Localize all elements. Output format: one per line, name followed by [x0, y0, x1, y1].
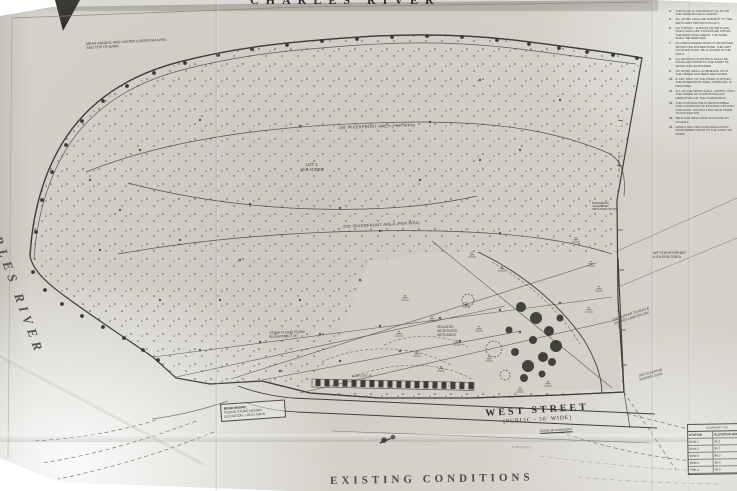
lot-label: LOT 1 ±8.4 ACRES: [300, 162, 323, 172]
top-sheet-title: CHARLES RIVER: [250, 0, 441, 7]
abutter-lines: [615, 198, 737, 287]
table-row: TBM-A85.9: [689, 466, 737, 474]
note-item: 8.ALL EROSION CONTROLS SHALL BE INSTALLE…: [669, 58, 735, 68]
note-item: 4.THIS PLAN IS THE RESULT OF AN ON THE G…: [669, 10, 735, 17]
parcel-outline: [30, 35, 642, 398]
abutter-owner-label: N/F CHRISTOPHER & EILEEN O'DEA: [653, 251, 686, 260]
scanned-survey-plan: CHARLES RIVER CHARLES RIVER 4.THIS PLAN …: [0, 0, 737, 491]
note-item: 14.HAVE A SOIL WETLAND EVALUATION PERFOR…: [669, 126, 735, 136]
note-item: 5.ALL WORK SHALL BE SUBJECT TO THE WETLA…: [669, 18, 735, 25]
bvw-label: BORDERING VEGETATED WETLANDS (BVW): [592, 202, 617, 212]
summary-table: SUMMARY OF STATION ELEVATION BUFFER BVW-…: [687, 423, 737, 475]
fold-crease-horizontal: [0, 434, 737, 442]
note-item: 11.ALL OF THE WORK SHALL COMPLY WITH THE…: [669, 90, 735, 100]
general-notes-list: 4.THIS PLAN IS THE RESULT OF AN ON THE G…: [669, 10, 735, 138]
note-item: 7.IN CASES WHERE WORK IS PROPOSED WITHIN…: [669, 42, 735, 56]
bearing-wall-label: N 88°51'05" W: [352, 374, 372, 378]
note-item: 6.NO TOPSOIL, SUBSOIL OR WETLAND SOILS S…: [669, 27, 735, 41]
note-item: 13.WETLAND RESOURCE FLAGGING BY OTHERS.: [669, 117, 735, 124]
plan-drawing: [0, 0, 737, 491]
note-item: 9.NO WORK SHALL COMMENCE UNTIL THE ORDER…: [669, 70, 735, 77]
bearing-right-label: S 01°34'25" W: [616, 152, 620, 171]
faint-bearing-label: S 34°29'48" E: [512, 446, 532, 451]
fema-floodplain-label: FEMA FLOOD PLAIN ELEVATION = 87: [270, 330, 305, 340]
isolated-wetlands-label: ISOLATED VEGETATED WETLANDS: [437, 325, 457, 337]
note-item: 12.THE CONTRACTOR IS RESPONSIBLE FOR LOC…: [669, 102, 735, 116]
note-item: 10.IF ANY PART OF THE WORK IS WITHIN THE…: [669, 78, 735, 88]
fold-crease-right: [651, 0, 655, 491]
fold-crease-left: [215, 0, 219, 491]
